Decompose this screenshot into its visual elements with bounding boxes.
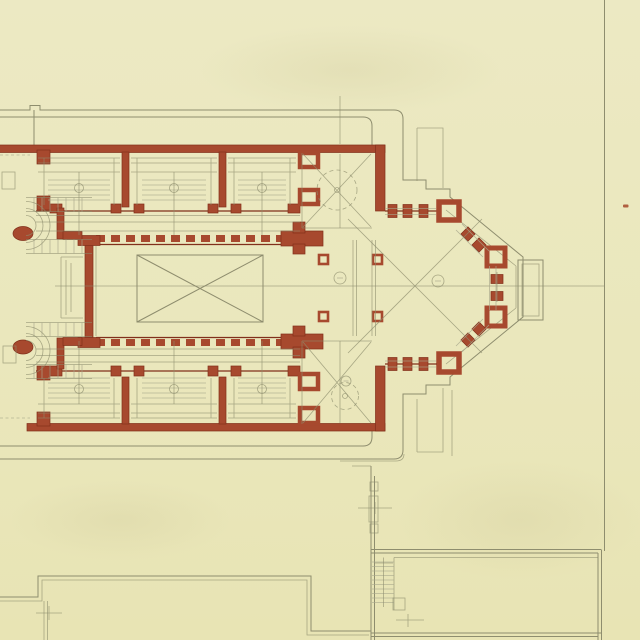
stair-newel-column [13, 227, 33, 241]
ink-speck [623, 205, 629, 208]
north-wall [0, 145, 385, 153]
north-east-wall [376, 145, 386, 211]
south-east-wall [376, 366, 386, 431]
floor-plan-drawing [0, 0, 640, 640]
south-wall [27, 424, 385, 432]
blueprint-scan [0, 0, 640, 640]
